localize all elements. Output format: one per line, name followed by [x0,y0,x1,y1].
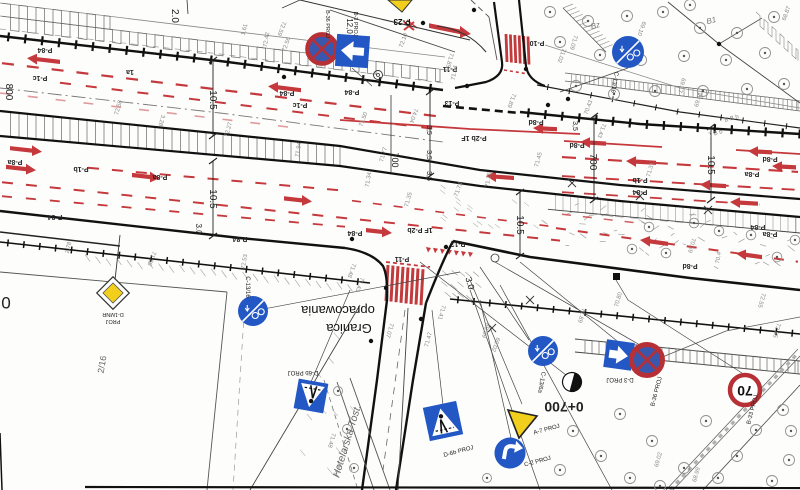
svg-text:3,5: 3,5 [425,150,432,160]
svg-text:PROJ: PROJ [105,318,120,324]
svg-text:700: 700 [587,154,598,171]
svg-text:D-1MNR: D-1MNR [102,311,123,317]
svg-text:P-23: P-23 [393,17,410,26]
svg-text:P-1c: P-1c [33,74,48,81]
svg-text:3.0: 3.0 [194,223,203,235]
svg-text:1a: 1a [126,68,134,75]
svg-text:P-1c: P-1c [293,101,308,108]
svg-text:P-2b 1F: P-2b 1F [461,134,487,141]
svg-text:D-6b PROJ: D-6b PROJ [288,369,319,375]
svg-text:3,5: 3,5 [425,171,432,181]
svg-text:P-8d: P-8d [569,141,584,148]
svg-text:3,5: 3,5 [425,125,432,135]
svg-text:opracowania: opracowania [300,303,374,318]
svg-text:P-8d: P-8d [762,155,777,162]
svg-text:10.5: 10.5 [207,90,218,110]
svg-text:10.5: 10.5 [514,215,525,235]
svg-text:P-8a: P-8a [745,170,760,177]
svg-text:P-84: P-84 [280,89,295,96]
svg-text:P-84: P-84 [233,235,248,242]
svg-text:P-84: P-84 [751,223,766,230]
svg-text:0+700: 0+700 [544,399,584,415]
svg-text:70: 70 [737,383,753,399]
svg-text:P-8d: P-8d [528,118,543,125]
svg-text:P-8d: P-8d [682,262,697,269]
svg-text:800: 800 [3,84,14,101]
svg-text:P-84: P-84 [633,188,648,195]
svg-text:Granica: Granica [325,321,371,336]
svg-text:P-10: P-10 [530,39,545,46]
svg-text:P-13: P-13 [445,99,460,106]
svg-text:3,5: 3,5 [571,121,578,131]
svg-text:2.0: 2.0 [169,9,180,23]
svg-text:P-13: P-13 [451,240,466,247]
svg-text:D-3 PROJ: D-3 PROJ [606,376,633,382]
svg-text:P-84: P-84 [348,229,363,236]
svg-text:D-3 PROJ: D-3 PROJ [352,11,358,36]
svg-text:10.5: 10.5 [705,155,716,175]
svg-text:0: 0 [1,293,10,312]
svg-text:700: 700 [390,152,400,167]
svg-text:B-36 PROJ: B-36 PROJ [324,10,330,38]
svg-text:C-13/16: C-13/16 [244,276,250,298]
svg-text:P-1b: P-1b [73,165,88,172]
svg-text:P-8a: P-8a [763,230,778,237]
svg-text:P-8a: P-8a [8,158,23,165]
svg-text:10.5: 10.5 [207,189,218,209]
svg-text:P-11: P-11 [395,255,410,262]
svg-text:P-84: P-84 [48,213,63,220]
svg-text:P-84: P-84 [38,46,53,53]
svg-text:1F P-2b: 1F P-2b [407,226,432,233]
svg-text:P-1b: P-1b [632,176,647,183]
svg-text:P-84: P-84 [345,88,360,95]
svg-text:P-8a: P-8a [153,173,168,180]
